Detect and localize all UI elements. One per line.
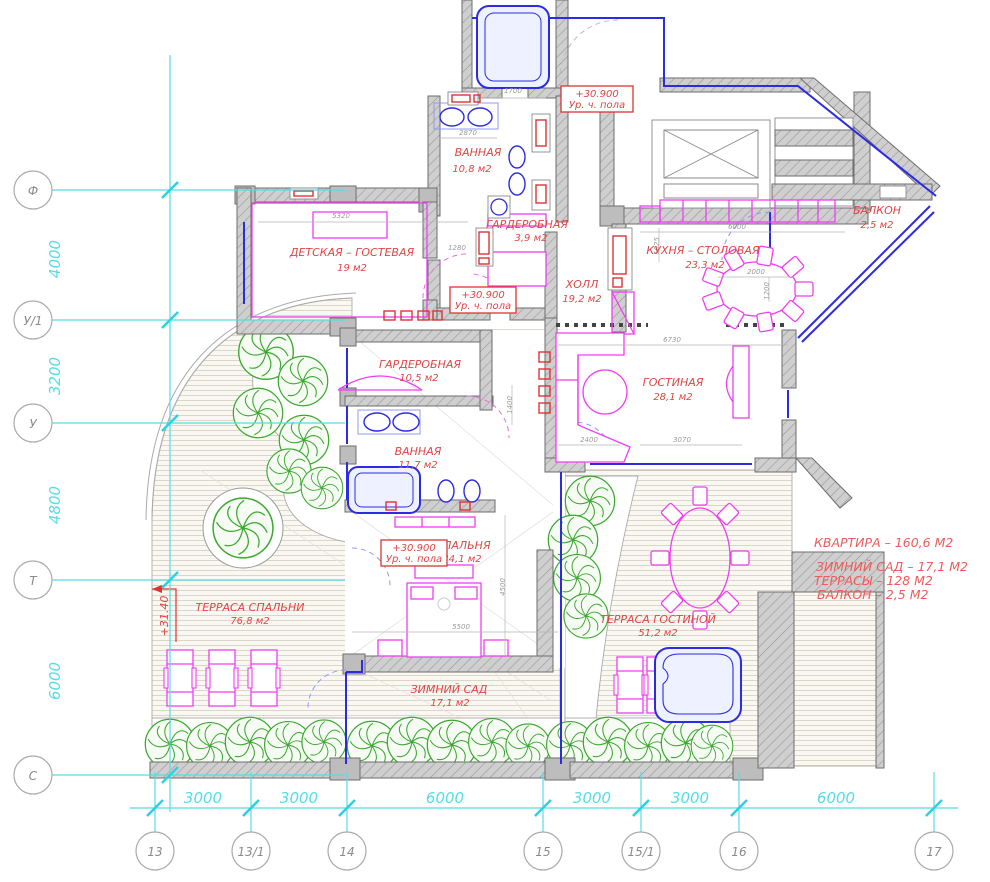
dim-1700: 1700 <box>504 87 522 95</box>
level-mark-middle: +30.900 Ур. ч. пола <box>450 287 516 313</box>
dim-2870: 2870 <box>459 129 477 137</box>
dim-1280: 1280 <box>448 244 466 252</box>
room-label-hall: ХОЛЛ <box>565 278 599 291</box>
level-mark-bedroom: +30.900 Ур. ч. пола <box>381 540 447 566</box>
col-dim-4: 3000 <box>573 789 611 807</box>
summary-apartment: КВАРТИРА – 160,6 М2 <box>814 535 953 550</box>
room-area-hall: 19,2 м2 <box>562 294 601 305</box>
dim-4500: 4500 <box>499 578 507 596</box>
svg-text:+30.900: +30.900 <box>575 89 618 100</box>
col-dim-3: 6000 <box>426 789 464 807</box>
row-dim-4800: 4800 <box>46 486 64 524</box>
dim-5500: 5500 <box>452 623 470 631</box>
col-axis-bubbles: 13 13/1 14 15 15/1 16 17 <box>136 832 953 870</box>
room-label-terrace-bedroom: ТЕРРАСА СПАЛЬНИ <box>196 601 305 614</box>
svg-text:17: 17 <box>926 845 942 859</box>
level-mark-top: +30.900 Ур. ч. пола <box>561 86 633 112</box>
svg-text:16: 16 <box>731 845 747 859</box>
summary-balcony: БАЛКОН – 2,5 М2 <box>817 587 928 602</box>
svg-text:13/1: 13/1 <box>238 845 265 859</box>
room-area-living: 28,1 м2 <box>653 392 692 403</box>
svg-text:+30.900: +30.900 <box>392 543 435 554</box>
room-label-wardrobe-big: ГАРДЕРОБНАЯ <box>379 358 461 371</box>
room-area-winter-garden: 17,1 м2 <box>430 698 469 709</box>
summary-winter-garden: ЗИМНИЙ САД – 17,1 М2 <box>816 559 968 574</box>
room-label-bathroom-main: ВАННАЯ <box>395 445 442 458</box>
room-area-terrace-bedroom: 76,8 м2 <box>230 616 269 627</box>
col-dim-1: 3000 <box>184 789 222 807</box>
room-label-bathroom-top: ВАННАЯ <box>455 146 502 159</box>
dim-5320: 5320 <box>332 212 350 220</box>
svg-text:15/1: 15/1 <box>628 845 655 859</box>
svg-text:Ур. ч. пола: Ур. ч. пола <box>455 301 511 312</box>
dim-2000: 2000 <box>747 268 765 276</box>
col-dim-2: 3000 <box>280 789 318 807</box>
floor-plan-canvas: 1700 2870 5320 1280 6000 1025 2000 1200 … <box>0 0 990 882</box>
room-area-nursery: 19 м2 <box>337 263 367 274</box>
room-area-kitchen: 23,3 м2 <box>685 260 724 271</box>
row-dim-6000: 6000 <box>46 662 64 700</box>
area-summary: КВАРТИРА – 160,6 М2 ЗИМНИЙ САД – 17,1 М2… <box>814 535 968 602</box>
room-label-nursery: ДЕТСКАЯ – ГОСТЕВАЯ <box>289 246 415 259</box>
room-area-terrace-living: 51,2 м2 <box>638 628 677 639</box>
svg-text:14: 14 <box>339 845 354 859</box>
svg-text:У: У <box>29 417 37 431</box>
col-dim-5: 3000 <box>671 789 709 807</box>
room-label-winter-garden: ЗИМНИЙ САД <box>411 683 488 696</box>
svg-text:Ур. ч. пола: Ур. ч. пола <box>569 100 625 111</box>
summary-terraces: ТЕРРАСЫ – 128 М2 <box>814 573 933 588</box>
room-label-wardrobe-small: ГАРДЕРОБНАЯ <box>486 218 568 231</box>
svg-text:У/1: У/1 <box>24 314 43 328</box>
room-area-bathroom-main: 11,7 м2 <box>398 460 437 471</box>
room-label-kitchen: КУХНЯ – СТОЛОВАЯ <box>646 244 760 257</box>
floor-plan-drawing: 1700 2870 5320 1280 6000 1025 2000 1200 … <box>0 0 990 882</box>
dim-6000: 6000 <box>728 223 746 231</box>
dim-1400: 1400 <box>506 396 514 414</box>
room-area-wardrobe-small: 3,9 м2 <box>515 233 548 244</box>
dim-1200: 1200 <box>763 282 771 300</box>
svg-text:+31.40: +31.40 <box>158 596 171 637</box>
dim-2400: 2400 <box>580 436 598 444</box>
svg-text:Ур. ч. пола: Ур. ч. пола <box>386 554 442 565</box>
room-label-terrace-living: ТЕРРАСА ГОСТИНОЙ <box>600 613 716 626</box>
svg-text:13: 13 <box>147 845 162 859</box>
dim-6730: 6730 <box>663 336 681 344</box>
room-area-bathroom-top: 10,8 м2 <box>452 164 491 175</box>
row-dim-3200: 3200 <box>46 357 64 395</box>
dim-3070: 3070 <box>673 436 691 444</box>
room-area-bedroom: 34,1 м2 <box>442 554 481 565</box>
col-dim-6: 6000 <box>817 789 855 807</box>
svg-text:15: 15 <box>535 845 550 859</box>
room-label-balcony: БАЛКОН <box>853 204 901 217</box>
room-area-wardrobe-big: 10,5 м2 <box>399 373 438 384</box>
svg-text:Ф: Ф <box>28 184 38 198</box>
row-dim-4000: 4000 <box>46 240 64 278</box>
room-area-balcony: 2,5 м2 <box>861 220 894 231</box>
svg-text:+30.900: +30.900 <box>461 290 504 301</box>
svg-text:С: С <box>29 769 38 783</box>
room-label-living: ГОСТИНАЯ <box>643 376 704 389</box>
